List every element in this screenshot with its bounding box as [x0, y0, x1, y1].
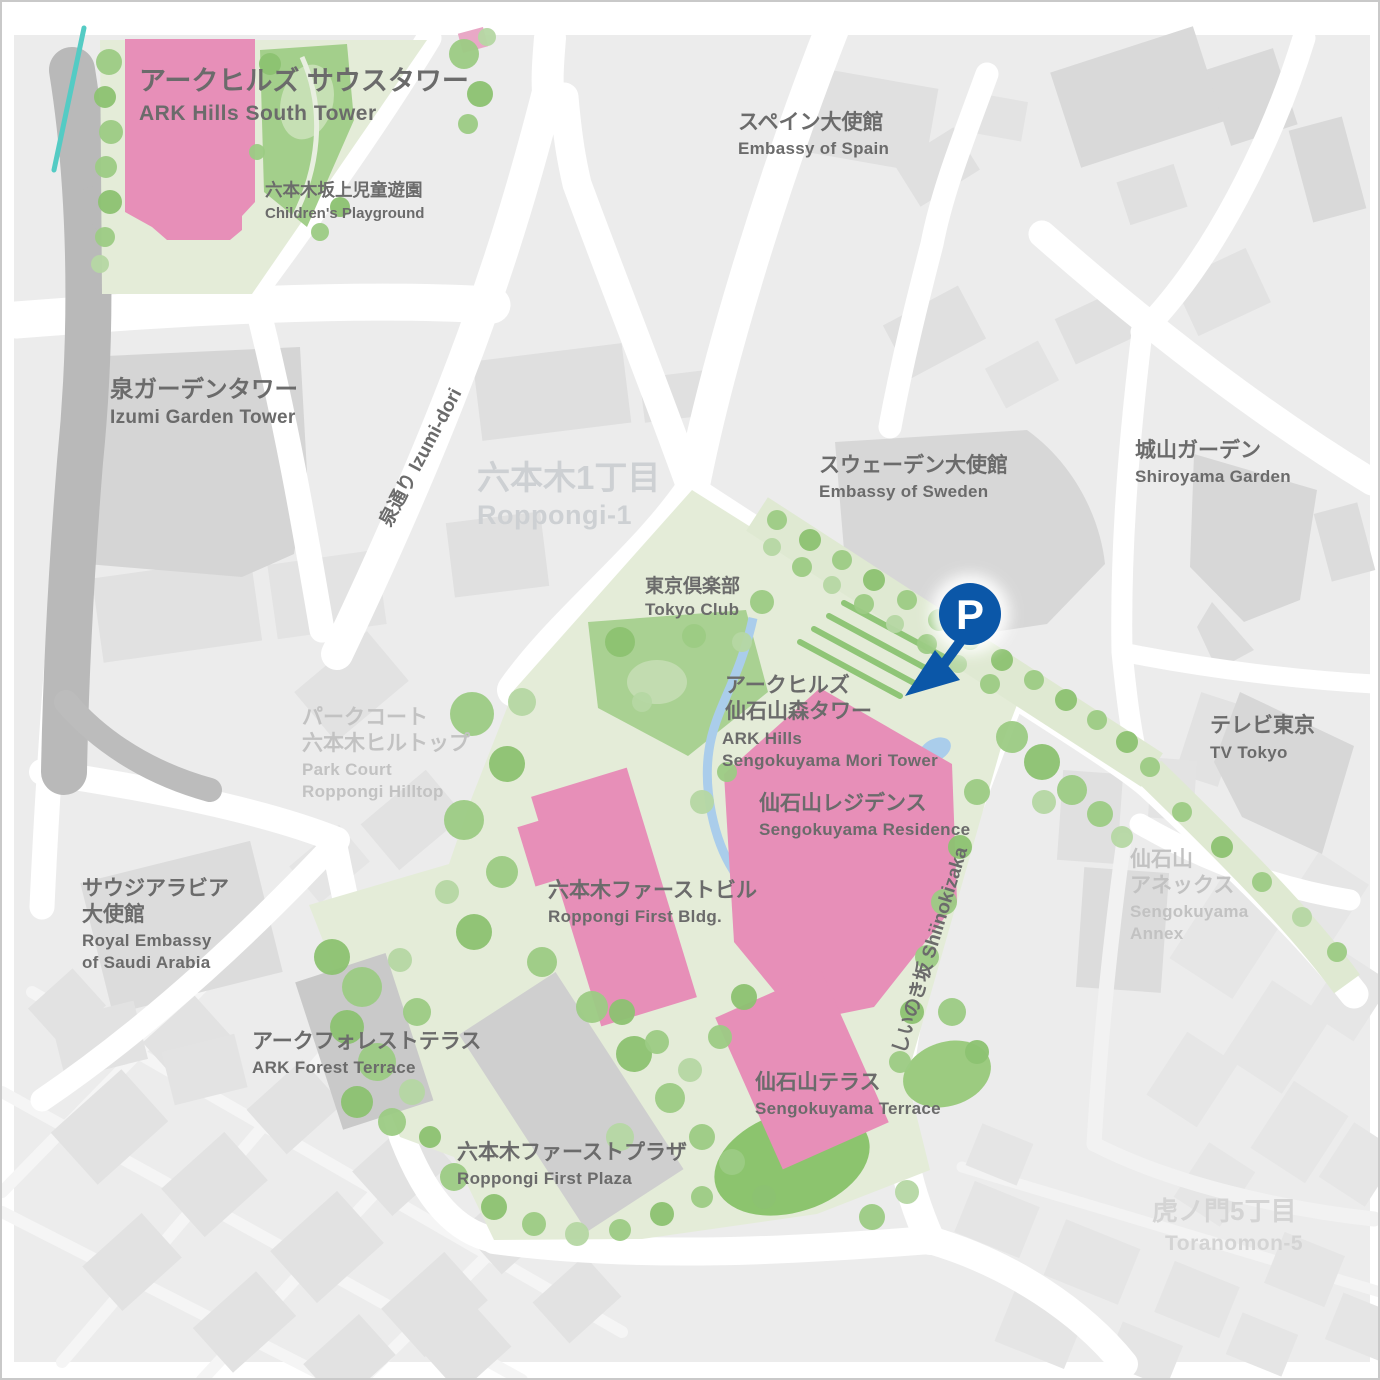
tree — [1032, 790, 1056, 814]
label-roppongi1-jp: 六本木1丁目 — [477, 459, 660, 496]
label-izumi-tower-en: Izumi Garden Tower — [110, 407, 296, 428]
label-forest-terrace-en: ARK Forest Terrace — [252, 1058, 416, 1077]
tree — [691, 1186, 713, 1208]
tree — [449, 39, 479, 69]
tree — [859, 1204, 885, 1230]
tree — [767, 510, 787, 530]
tree — [1211, 836, 1233, 858]
tree — [1116, 731, 1138, 753]
tree — [1055, 689, 1077, 711]
label-annex-en1: Sengokuyama — [1130, 902, 1249, 921]
tree — [98, 190, 122, 214]
label-sweden-en: Embassy of Sweden — [819, 482, 989, 501]
label-sweden-jp: スウェーデン大使館 — [819, 453, 1008, 477]
tree — [341, 1086, 373, 1118]
label-annex-jp2: アネックス — [1130, 874, 1234, 897]
tree — [1087, 801, 1113, 827]
label-shiroyama-en: Shiroyama Garden — [1135, 467, 1291, 486]
map-page: アークヒルズ サウスタワー ARK Hills South Tower 六本木坂… — [0, 0, 1380, 1380]
label-izumi-tower-jp: 泉ガーデンタワー — [110, 375, 298, 402]
tree — [980, 674, 1000, 694]
tree — [682, 624, 706, 648]
tree — [435, 880, 459, 904]
tree — [655, 1083, 685, 1113]
tree — [996, 721, 1028, 753]
tree — [403, 998, 431, 1026]
tree — [938, 998, 966, 1026]
label-residence-jp: 仙石山レジデンス — [759, 791, 927, 815]
label-ark-south-tower-jp: アークヒルズ サウスタワー — [139, 65, 469, 96]
tree — [799, 529, 821, 551]
tree — [489, 746, 525, 782]
tree — [991, 649, 1013, 671]
tree — [609, 999, 635, 1025]
tree — [1140, 757, 1160, 777]
tree — [527, 947, 557, 977]
parking-marker-label: P — [956, 591, 984, 638]
label-annex-en2: Annex — [1130, 924, 1184, 943]
tree — [689, 1124, 715, 1150]
tree — [609, 1219, 631, 1241]
label-mori-jp1: アークヒルズ — [725, 673, 850, 697]
tree — [576, 991, 608, 1023]
label-ark-south-tower-en: ARK Hills South Tower — [139, 102, 377, 125]
tree — [1024, 670, 1044, 690]
tree — [650, 1202, 674, 1226]
tree — [419, 1126, 441, 1148]
label-mori-en2: Sengokuyama Mori Tower — [722, 751, 938, 770]
label-residence-en: Sengokuyama Residence — [759, 820, 970, 839]
label-first-plaza-jp: 六本木ファーストプラザ — [457, 1141, 687, 1164]
label-playground-jp: 六本木坂上児童遊園 — [265, 180, 423, 200]
tree — [886, 615, 904, 633]
label-park-court-en1: Park Court — [302, 760, 392, 779]
label-first-plaza-en: Roppongi First Plaza — [457, 1169, 632, 1188]
tree — [486, 856, 518, 888]
label-saudi-en1: Royal Embassy — [82, 931, 212, 950]
tree — [645, 1030, 669, 1054]
label-first-bldg-jp: 六本木ファーストビル — [548, 879, 757, 902]
map-canvas: アークヒルズ サウスタワー ARK Hills South Tower 六本木坂… — [2, 2, 1380, 1380]
label-tokyo-club-jp: 東京倶楽部 — [645, 574, 740, 597]
tree — [314, 939, 350, 975]
tree — [96, 49, 122, 75]
tree — [1024, 744, 1060, 780]
tree — [1111, 826, 1133, 848]
tree — [719, 1149, 745, 1175]
tree — [632, 692, 652, 712]
tree — [678, 1058, 702, 1082]
label-shiroyama-jp: 城山ガーデン — [1135, 438, 1261, 462]
tree — [897, 590, 917, 610]
label-tv-tokyo-jp: テレビ東京 — [1210, 713, 1315, 737]
label-playground-en: Children's Playground — [265, 205, 424, 222]
tree — [508, 688, 536, 716]
tree — [249, 144, 265, 160]
tree — [605, 627, 635, 657]
tree — [399, 1079, 425, 1105]
tree — [708, 1025, 732, 1049]
tree — [752, 1185, 776, 1209]
label-saudi-jp1: サウジアラビア — [82, 877, 229, 900]
tree — [732, 632, 752, 652]
label-annex-jp1: 仙石山 — [1130, 847, 1193, 871]
tree — [1057, 775, 1087, 805]
tree — [854, 594, 874, 614]
label-terrace-jp: 仙石山テラス — [755, 1070, 881, 1094]
label-saudi-en2: of Saudi Arabia — [82, 953, 211, 972]
label-mori-en1: ARK Hills — [722, 729, 802, 748]
tree — [478, 28, 496, 46]
highway-main[interactable] — [64, 70, 88, 772]
label-forest-terrace-jp: アークフォレストテラス — [252, 1030, 481, 1053]
tree — [823, 576, 841, 594]
tree — [832, 550, 852, 570]
tree — [95, 227, 115, 247]
tree — [895, 1180, 919, 1204]
tree — [467, 81, 493, 107]
label-tv-tokyo-en: TV Tokyo — [1210, 743, 1288, 762]
tree — [342, 967, 382, 1007]
label-spain-en: Embassy of Spain — [738, 139, 889, 158]
tree — [91, 255, 109, 273]
tree — [450, 692, 494, 736]
tree — [378, 1108, 406, 1136]
label-roppongi1-en: Roppongi-1 — [477, 500, 632, 530]
tree — [964, 779, 990, 805]
tree — [94, 86, 116, 108]
tree — [763, 538, 781, 556]
label-toranomon-en: Toranomon-5 — [1165, 1232, 1303, 1255]
tree — [1087, 710, 1107, 730]
label-tokyo-club-en: Tokyo Club — [645, 600, 739, 619]
label-saudi-jp2: 大使館 — [82, 902, 145, 926]
tree — [863, 569, 885, 591]
label-first-bldg-en: Roppongi First Bldg. — [548, 907, 722, 926]
tree — [917, 634, 937, 654]
label-terrace-en: Sengokuyama Terrace — [755, 1099, 941, 1118]
tree — [792, 557, 812, 577]
tree — [481, 1194, 507, 1220]
label-spain-jp: スペイン大使館 — [738, 110, 884, 134]
tree — [311, 223, 329, 241]
label-park-court-jp1: パークコート — [302, 706, 428, 729]
tree — [99, 120, 123, 144]
tree — [565, 1222, 589, 1246]
tree — [750, 590, 774, 614]
tree — [1172, 802, 1192, 822]
tree — [1292, 907, 1312, 927]
tree — [1327, 942, 1347, 962]
label-mori-jp2: 仙石山森タワー — [725, 699, 872, 723]
tree — [731, 984, 757, 1010]
tree — [690, 790, 714, 814]
tree — [388, 948, 412, 972]
tree — [458, 114, 478, 134]
label-park-court-en2: Roppongi Hilltop — [302, 782, 444, 801]
tree — [95, 156, 117, 178]
tree — [444, 800, 484, 840]
label-park-court-jp2: 六本木ヒルトップ — [302, 732, 471, 755]
tree — [965, 1040, 989, 1064]
label-toranomon-jp: 虎ノ門5丁目 — [1152, 1196, 1296, 1226]
tree — [456, 914, 492, 950]
tree — [1252, 872, 1272, 892]
tree — [522, 1212, 546, 1236]
